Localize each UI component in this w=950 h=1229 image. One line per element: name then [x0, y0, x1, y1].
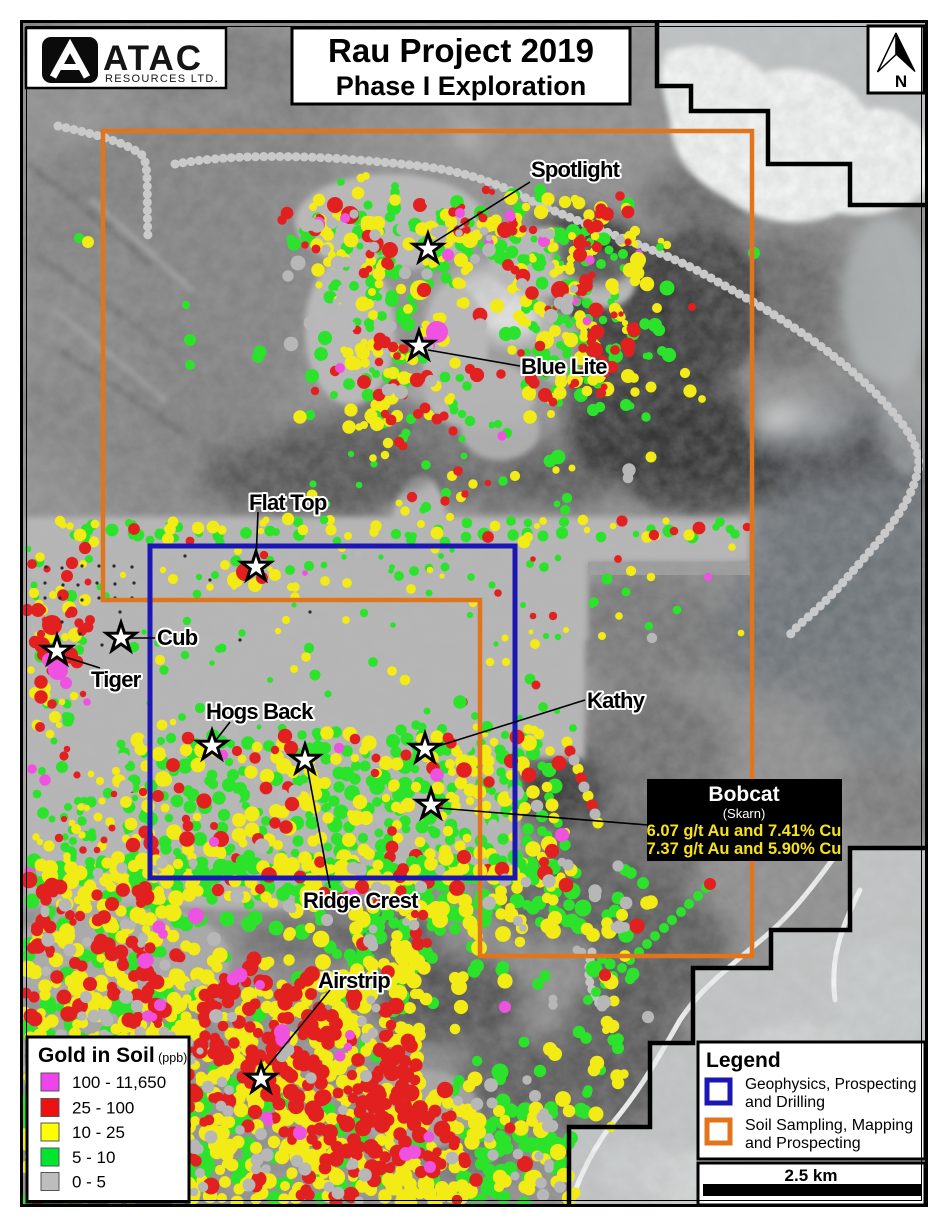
svg-text:7.37 g/t Au and 5.90% Cu: 7.37 g/t Au and 5.90% Cu — [647, 840, 842, 858]
svg-text:0 - 5: 0 - 5 — [72, 1173, 106, 1192]
svg-text:Tiger: Tiger — [91, 667, 142, 692]
svg-text:Blue Lite: Blue Lite — [521, 354, 607, 379]
svg-text:Ridge Crest: Ridge Crest — [303, 888, 419, 913]
svg-text:and Drilling: and Drilling — [745, 1094, 825, 1111]
svg-text:100 - 11,650: 100 - 11,650 — [72, 1073, 166, 1092]
svg-text:Bobcat: Bobcat — [708, 783, 779, 806]
svg-text:Rau Project 2019: Rau Project 2019 — [328, 32, 594, 69]
svg-text:6.07 g/t Au and 7.41% Cu: 6.07 g/t Au and 7.41% Cu — [647, 822, 842, 840]
svg-text:Flat Top: Flat Top — [249, 490, 327, 515]
svg-text:10 - 25: 10 - 25 — [72, 1123, 125, 1142]
svg-text:Geophysics, Prospecting: Geophysics, Prospecting — [745, 1076, 916, 1093]
svg-text:(Skarn): (Skarn) — [723, 806, 766, 821]
svg-text:Airstrip: Airstrip — [318, 968, 390, 993]
svg-text:Legend: Legend — [706, 1049, 781, 1072]
svg-text:RESOURCES LTD.: RESOURCES LTD. — [105, 73, 219, 85]
svg-text:N: N — [895, 72, 907, 91]
svg-text:5 - 10: 5 - 10 — [72, 1148, 115, 1167]
svg-text:25 - 100: 25 - 100 — [72, 1099, 134, 1118]
svg-text:Cub: Cub — [157, 625, 198, 650]
svg-text:and Prospecting: and Prospecting — [745, 1135, 861, 1152]
svg-text:Kathy: Kathy — [587, 688, 646, 713]
svg-text:Spotlight: Spotlight — [531, 157, 621, 182]
svg-text:Phase I Exploration: Phase I Exploration — [336, 71, 587, 101]
svg-text:Soil Sampling, Mapping: Soil Sampling, Mapping — [745, 1117, 913, 1134]
svg-text:Hogs Back: Hogs Back — [206, 699, 314, 724]
svg-text:2.5 km: 2.5 km — [785, 1166, 838, 1185]
